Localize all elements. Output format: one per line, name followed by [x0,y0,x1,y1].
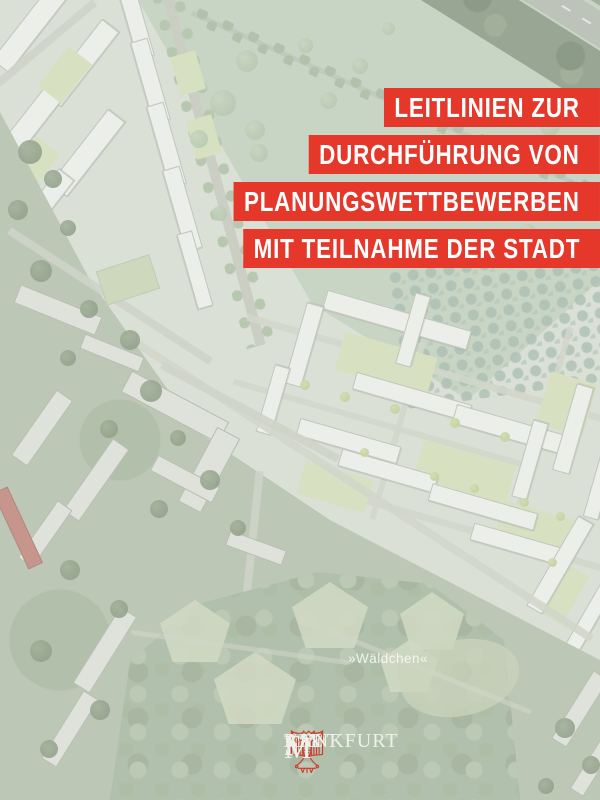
title-banner-line-4: MIT TEILNAHME DER STADT [243,229,600,268]
cover-page: »Wäldchen« LEITLINIEN ZUR DURCHFÜHRUNG V… [0,0,600,800]
title-banner-line-3: PLANUNGSWETTBEWERBEN [234,182,600,221]
title-banner-line-1: LEITLINIEN ZUR [384,88,600,127]
title-banner-line-2: DURCHFÜHRUNG VON [309,135,600,174]
forest-label: »Wäldchen« [348,651,428,666]
logo-word-main: AIN [284,730,323,753]
